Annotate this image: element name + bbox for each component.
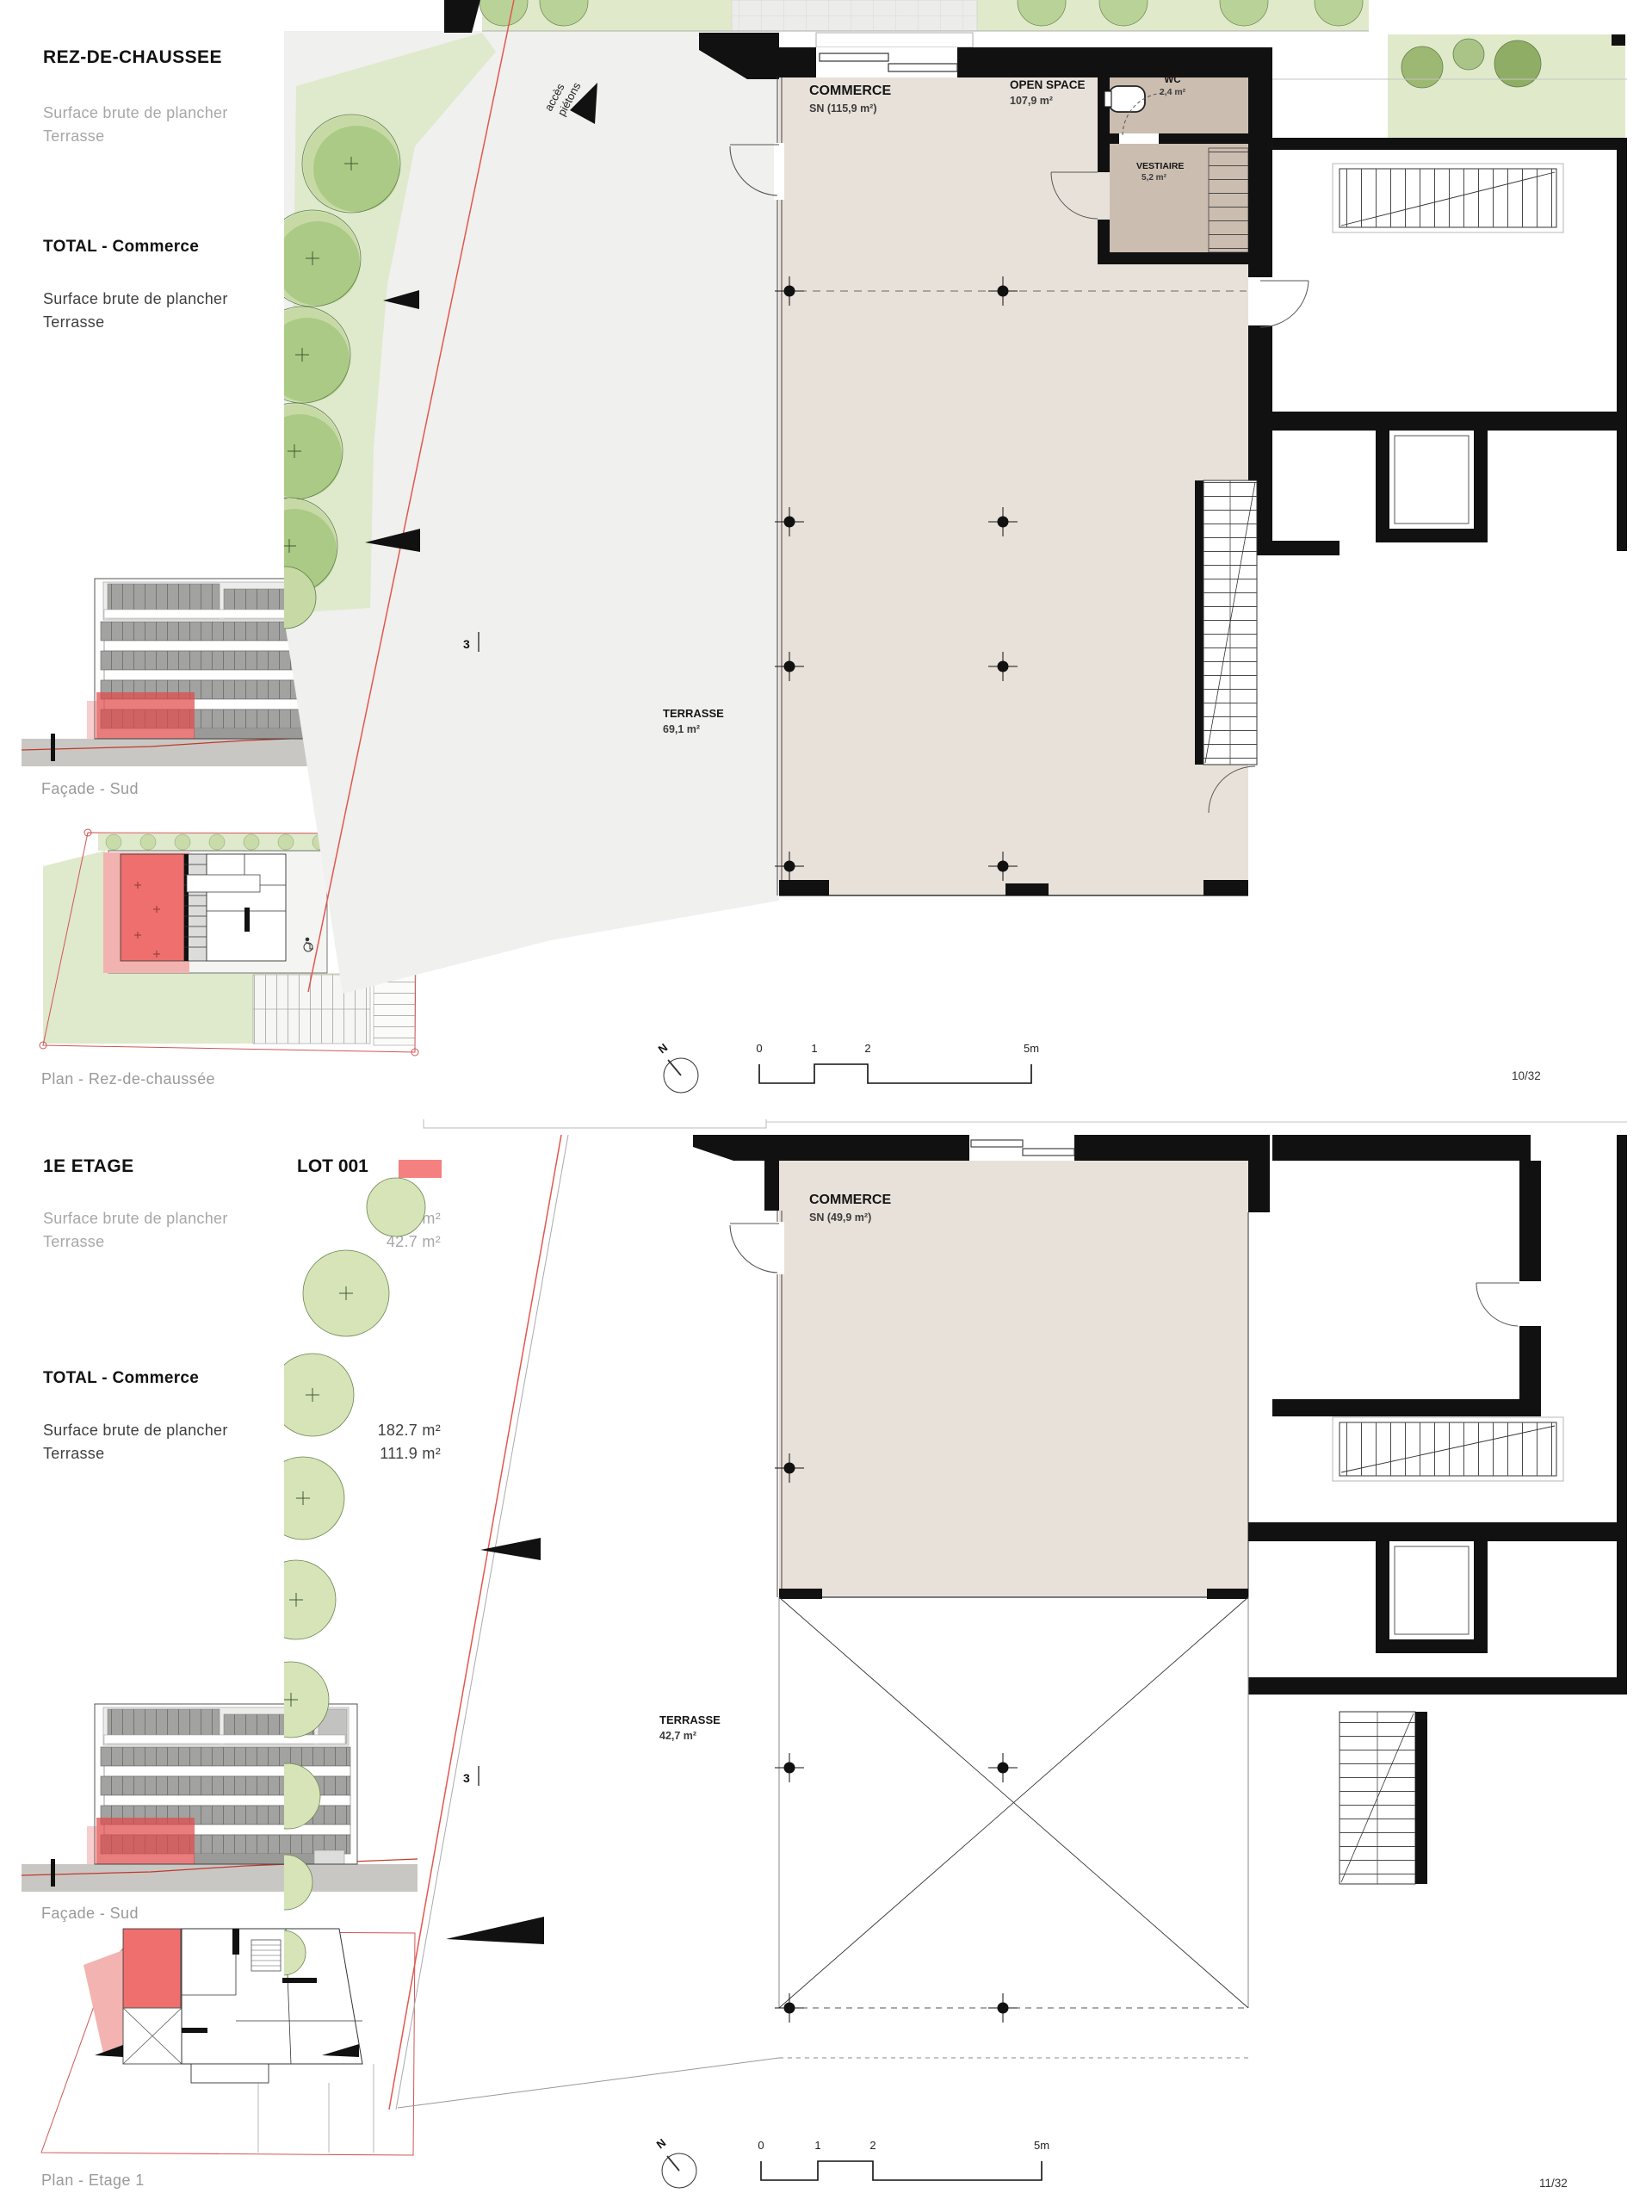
north-arrow: N (654, 2136, 696, 2188)
room-label-commerce: COMMERCE (809, 1193, 891, 1207)
scale-bar-rdc: 0 1 2 5m (756, 1042, 1039, 1083)
plan-caption: Plan - Rez-de-chaussée (41, 1070, 215, 1088)
trees-group (284, 1178, 425, 1975)
landscape-right-patch (1388, 34, 1625, 148)
room-label-commerce: COMMERCE (809, 84, 891, 98)
lot-area (123, 1929, 181, 2008)
building-etage1 (730, 1135, 1627, 2023)
floor-title-etage1: 1E ETAGE (43, 1156, 134, 1177)
metric-label: Terrasse (43, 1442, 104, 1465)
door-swing (1476, 1283, 1519, 1326)
page-number: 10/32 (1512, 1069, 1541, 1082)
scale-tick: 0 (756, 1042, 762, 1055)
metric-label: Terrasse (43, 311, 104, 334)
scale-tick: 1 (811, 1042, 817, 1055)
room-area-wc: 2,4 m² (1160, 87, 1186, 97)
scale-tick: 2 (864, 1042, 870, 1055)
void-over-rdc (779, 1597, 1248, 2008)
total-title-etage1: TOTAL - Commerce (43, 1369, 199, 1388)
room-label-wc: WC (1164, 75, 1180, 85)
north-label: N (654, 2136, 669, 2152)
room-area-open-space: 107,9 m² (1010, 95, 1053, 107)
room-area-vestiaire: 5,2 m² (1142, 173, 1167, 183)
floor-title-rdc: REZ-DE-CHAUSSEE (43, 47, 222, 68)
room-label-open-space: OPEN SPACE (1010, 78, 1086, 91)
elevator-shaft (1389, 431, 1474, 529)
plan-caption: Plan - Etage 1 (41, 2172, 145, 2190)
scale-tick: 1 (814, 2139, 820, 2152)
scale-tick: 0 (758, 2139, 764, 2152)
parcel-boundary-line (389, 1135, 561, 2110)
elevator-shaft (1389, 1541, 1474, 1639)
section-cut-mark: 3 (463, 637, 470, 651)
floor-plan-rdc: COMMERCE SN (115,9 m²) OPEN SPACE 107,9 … (284, 0, 1652, 1119)
room-area-commerce: SN (49,9 m²) (809, 1211, 871, 1224)
metric-label: Surface brute de plancher (43, 102, 228, 125)
lot-highlight-pink (87, 701, 96, 739)
room-area-terrasse: 69,1 m² (663, 723, 700, 735)
ramp-wedge (446, 1917, 544, 1944)
scale-tick: 5m (1024, 1042, 1039, 1055)
right-wing (1272, 79, 1627, 551)
total-title-rdc: TOTAL - Commerce (43, 238, 199, 257)
metric-label: Surface brute de plancher (43, 1207, 228, 1230)
room-area-terrasse: 42,7 m² (659, 1730, 696, 1742)
scale-bar-etage1: 0 1 2 5m (758, 2139, 1049, 2180)
room-label-vestiaire: VESTIAIRE (1136, 161, 1184, 171)
sliding-door (820, 53, 888, 61)
lot-area (121, 854, 184, 961)
landscape-top-band (480, 0, 1369, 31)
metric-label: Terrasse (43, 1230, 104, 1254)
north-label: N (656, 1041, 671, 1056)
lot-halo (84, 1950, 123, 2054)
scale-tick: 2 (869, 2139, 875, 2152)
north-arrow: N (656, 1041, 698, 1093)
exterior-stair (1340, 169, 1556, 227)
sliding-door (1023, 1149, 1074, 1156)
room-label-terrasse: TERRASSE (659, 1713, 721, 1726)
metric-label: Surface brute de plancher (43, 288, 228, 311)
floor-plan-etage1: COMMERCE SN (49,9 m²) TERRASSE 42,7 m² 3… (284, 1119, 1652, 2212)
lot-highlight-red (96, 692, 195, 739)
door-swing (730, 1224, 779, 1273)
section-cut-mark: 3 (463, 1771, 470, 1785)
metric-label: Terrasse (43, 125, 104, 148)
commerce-floor (779, 1161, 1248, 1597)
brochure-page: { "colors": { "accent": "#f4807f", "plan… (0, 0, 1652, 2212)
door-swing (1260, 281, 1309, 327)
sliding-door (888, 64, 957, 71)
sliding-door (971, 1140, 1023, 1147)
metric-label: Surface brute de plancher (43, 1419, 228, 1442)
room-label-terrasse: TERRASSE (663, 707, 724, 720)
scale-tick: 5m (1034, 2139, 1049, 2152)
room-area-commerce: SN (115,9 m²) (809, 102, 877, 115)
facade-caption: Façade - Sud (41, 1905, 139, 1923)
toilet-fixture (1109, 86, 1145, 112)
page-number: 11/32 (1539, 2177, 1568, 2190)
facade-caption: Façade - Sud (41, 780, 139, 798)
